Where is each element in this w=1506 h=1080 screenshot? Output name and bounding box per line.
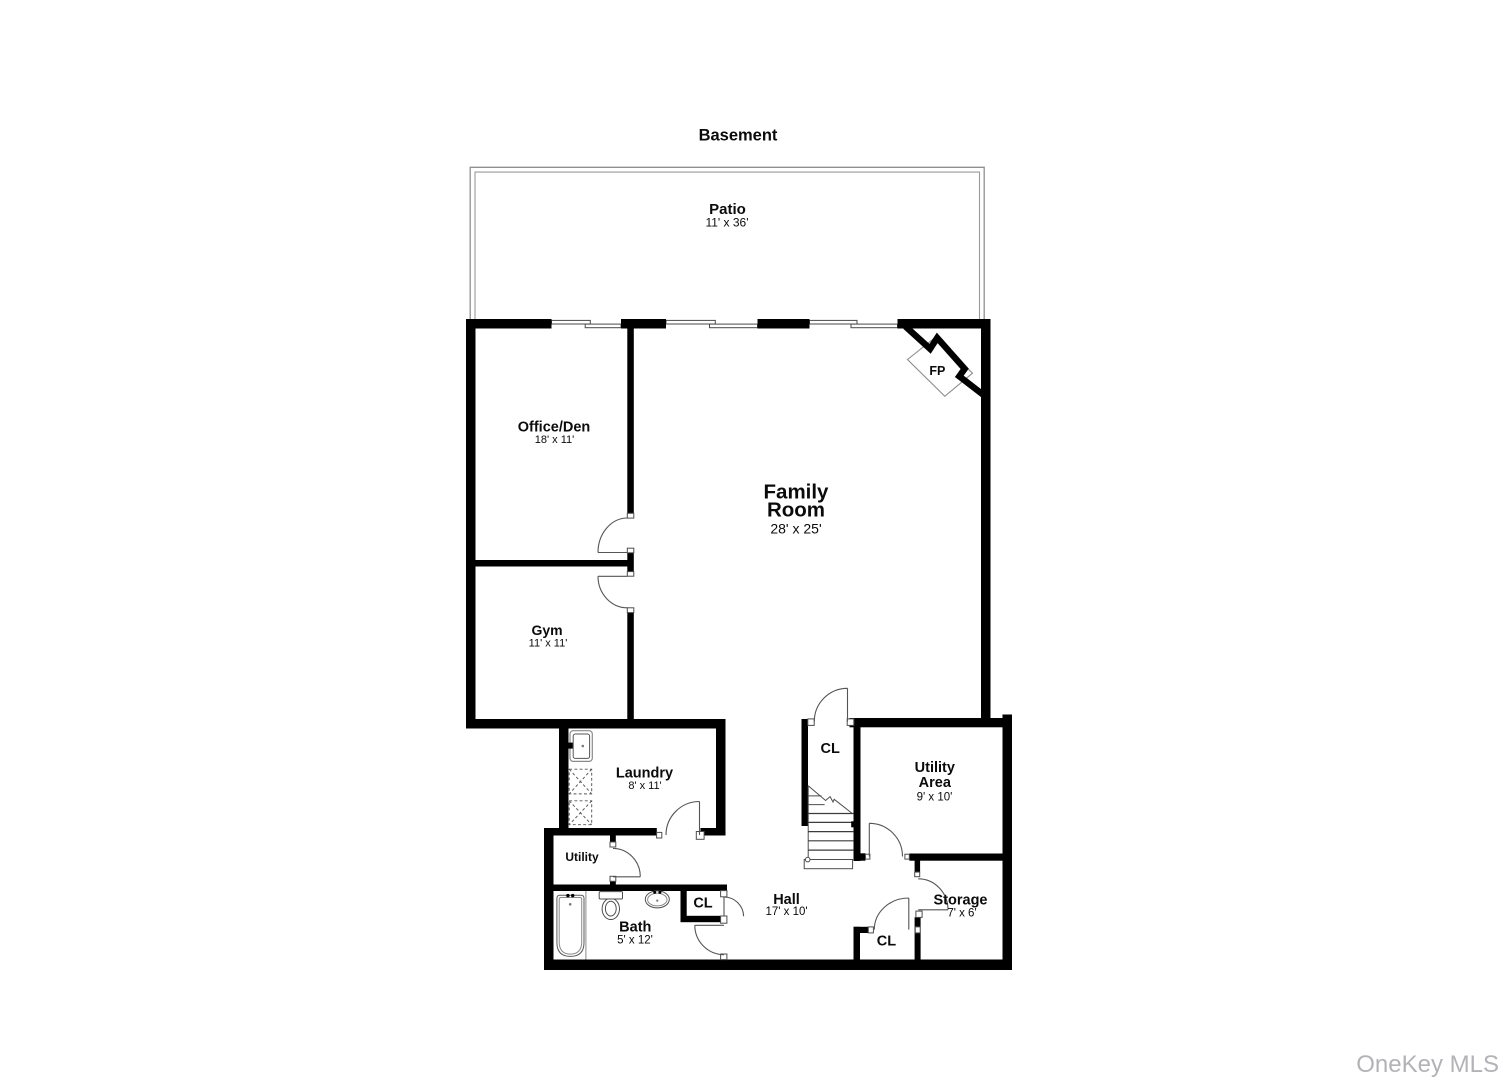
svg-text:CL: CL	[693, 896, 712, 912]
svg-text:5' x 12': 5' x 12'	[617, 935, 653, 947]
svg-text:9' x 10': 9' x 10'	[917, 792, 953, 804]
svg-text:Gym: Gym	[531, 622, 562, 638]
svg-text:11' x 36': 11' x 36'	[705, 216, 748, 230]
svg-text:7' x 6': 7' x 6'	[947, 908, 976, 920]
svg-text:Room: Room	[767, 499, 825, 522]
svg-text:Area: Area	[919, 775, 952, 791]
svg-text:11' x 11': 11' x 11'	[529, 638, 568, 650]
svg-text:Basement: Basement	[699, 127, 778, 145]
svg-text:17' x 10': 17' x 10'	[765, 906, 807, 918]
svg-text:Storage: Storage	[934, 893, 988, 909]
svg-text:CL: CL	[877, 934, 896, 950]
svg-text:Bath: Bath	[619, 920, 651, 936]
svg-text:Utility: Utility	[915, 760, 955, 776]
svg-text:OneKey MLS: OneKey MLS	[1356, 1051, 1499, 1078]
svg-text:CL: CL	[821, 741, 840, 757]
svg-text:28' x 25': 28' x 25'	[770, 521, 821, 537]
svg-text:8' x 11': 8' x 11'	[628, 780, 661, 792]
svg-text:FP: FP	[929, 364, 945, 378]
svg-text:18' x 11': 18' x 11'	[535, 434, 574, 446]
svg-text:Utility: Utility	[565, 850, 599, 864]
